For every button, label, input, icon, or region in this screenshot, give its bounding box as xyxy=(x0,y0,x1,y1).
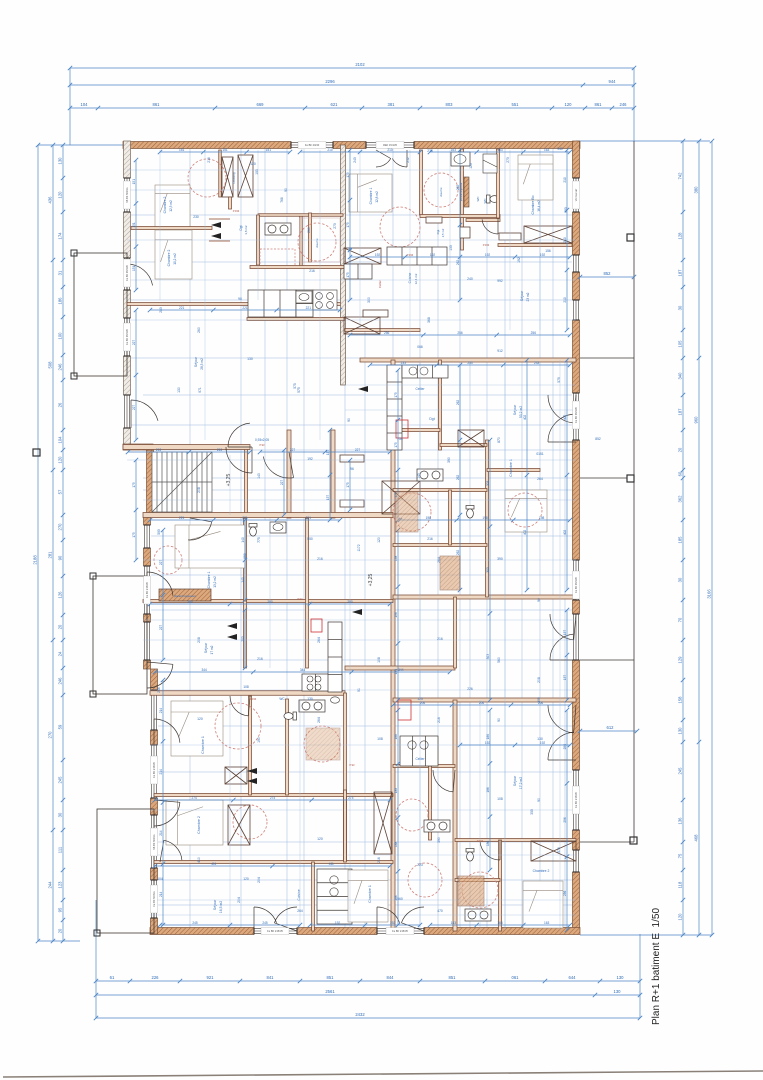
svg-text:368: 368 xyxy=(427,317,431,323)
svg-text:Fe BF 215/35: Fe BF 215/35 xyxy=(145,582,149,598)
svg-text:20: 20 xyxy=(58,624,63,629)
svg-text:REF 15/135: REF 15/135 xyxy=(383,143,397,147)
svg-text:213: 213 xyxy=(156,448,162,452)
svg-text:175: 175 xyxy=(346,482,350,488)
svg-text:410: 410 xyxy=(197,857,201,863)
svg-text:188: 188 xyxy=(394,841,398,847)
svg-text:612: 612 xyxy=(607,725,615,730)
svg-text:16,4 m2: 16,4 m2 xyxy=(537,200,541,212)
svg-text:274: 274 xyxy=(192,796,198,800)
svg-text:192: 192 xyxy=(390,921,396,925)
svg-text:+3,25: +3,25 xyxy=(368,573,374,586)
svg-text:17,2 m2: 17,2 m2 xyxy=(519,777,523,789)
svg-text:157: 157 xyxy=(563,675,567,681)
svg-text:120: 120 xyxy=(377,537,381,543)
svg-text:151: 151 xyxy=(132,265,136,271)
svg-text:WC: WC xyxy=(476,196,480,202)
svg-text:120: 120 xyxy=(58,191,63,199)
svg-text:57: 57 xyxy=(58,489,63,494)
svg-text:187: 187 xyxy=(678,408,683,416)
svg-text:91: 91 xyxy=(357,688,361,692)
svg-text:851: 851 xyxy=(327,975,335,980)
svg-text:163: 163 xyxy=(544,148,550,152)
svg-text:douche: douche xyxy=(315,238,319,248)
svg-text:210: 210 xyxy=(563,177,567,183)
svg-text:Fe BF 215/35: Fe BF 215/35 xyxy=(267,929,283,933)
svg-text:163: 163 xyxy=(544,921,550,925)
svg-text:264: 264 xyxy=(317,637,321,643)
svg-text:90: 90 xyxy=(347,418,351,422)
svg-text:344: 344 xyxy=(398,668,404,672)
svg-text:130: 130 xyxy=(58,157,63,165)
svg-text:775: 775 xyxy=(257,537,261,543)
svg-text:111: 111 xyxy=(58,846,63,853)
svg-text:Séjour: Séjour xyxy=(213,899,217,910)
svg-text:204: 204 xyxy=(257,877,261,883)
svg-text:130: 130 xyxy=(617,975,625,980)
svg-text:P.033: P.033 xyxy=(233,209,240,213)
svg-text:303: 303 xyxy=(486,654,490,660)
svg-text:280: 280 xyxy=(159,307,163,313)
svg-text:175: 175 xyxy=(394,392,398,398)
svg-text:130: 130 xyxy=(247,357,253,361)
svg-text:175: 175 xyxy=(394,442,398,448)
svg-text:2188: 2188 xyxy=(33,555,38,565)
svg-text:221: 221 xyxy=(242,306,248,310)
svg-text:Dgt: Dgt xyxy=(436,230,440,235)
svg-text:123: 123 xyxy=(417,697,423,701)
svg-text:233: 233 xyxy=(534,361,540,365)
svg-text:213: 213 xyxy=(217,448,223,452)
svg-text:870: 870 xyxy=(497,437,501,443)
svg-text:108: 108 xyxy=(377,737,383,741)
svg-text:16,5 m2: 16,5 m2 xyxy=(219,901,223,913)
svg-text:2,5 m2: 2,5 m2 xyxy=(441,228,445,237)
svg-text:551: 551 xyxy=(512,102,520,107)
svg-text:579: 579 xyxy=(557,377,561,383)
svg-text:186: 186 xyxy=(486,734,490,740)
svg-text:256: 256 xyxy=(457,331,463,335)
svg-text:Fe BF 215/35: Fe BF 215/35 xyxy=(152,762,156,778)
svg-text:100: 100 xyxy=(58,332,63,340)
svg-text:362: 362 xyxy=(678,495,683,503)
svg-text:75: 75 xyxy=(678,853,683,858)
svg-text:24: 24 xyxy=(58,651,63,656)
svg-text:216: 216 xyxy=(377,857,381,863)
svg-text:742: 742 xyxy=(678,172,683,180)
svg-text:590: 590 xyxy=(537,697,541,703)
svg-text:861: 861 xyxy=(595,102,603,107)
svg-text:140: 140 xyxy=(241,537,245,543)
svg-text:P.033: P.033 xyxy=(483,243,490,247)
svg-text:402: 402 xyxy=(563,415,567,421)
svg-text:Séjour: Séjour xyxy=(513,404,517,415)
svg-text:90: 90 xyxy=(238,297,242,301)
svg-text:12,3 m2: 12,3 m2 xyxy=(169,200,173,212)
svg-text:274: 274 xyxy=(270,796,276,800)
svg-text:151: 151 xyxy=(132,222,136,228)
svg-text:104: 104 xyxy=(157,877,163,881)
svg-text:350: 350 xyxy=(530,809,534,815)
svg-text:156: 156 xyxy=(545,249,551,253)
svg-text:210: 210 xyxy=(327,148,333,152)
svg-text:130: 130 xyxy=(614,989,622,994)
svg-text:245: 245 xyxy=(58,776,63,784)
svg-text:WC: WC xyxy=(279,697,285,701)
svg-text:214: 214 xyxy=(159,769,163,775)
svg-text:10,2 m2: 10,2 m2 xyxy=(173,253,177,265)
svg-text:861: 861 xyxy=(153,102,161,107)
svg-text:163: 163 xyxy=(451,921,457,925)
svg-text:Chambre 1: Chambre 1 xyxy=(368,885,372,903)
svg-text:227: 227 xyxy=(132,405,136,411)
svg-text:Fe BF 95/135: Fe BF 95/135 xyxy=(125,329,129,345)
svg-text:390: 390 xyxy=(447,457,451,463)
svg-text:Chambre 2: Chambre 2 xyxy=(533,869,550,873)
svg-text:104: 104 xyxy=(58,436,63,444)
svg-text:210: 210 xyxy=(563,297,567,303)
svg-text:221: 221 xyxy=(179,516,185,520)
svg-text:233: 233 xyxy=(467,361,473,365)
svg-text:0,93x2,05: 0,93x2,05 xyxy=(255,438,269,442)
svg-text:344: 344 xyxy=(300,668,306,672)
svg-text:246: 246 xyxy=(157,687,161,693)
svg-text:216: 216 xyxy=(309,269,315,273)
svg-text:262: 262 xyxy=(456,550,460,556)
svg-text:Chambre 2: Chambre 2 xyxy=(167,250,171,267)
svg-text:852: 852 xyxy=(604,271,612,276)
svg-text:30: 30 xyxy=(58,812,63,817)
svg-text:WC: WC xyxy=(483,198,487,204)
svg-text:958: 958 xyxy=(243,553,247,559)
svg-text:174: 174 xyxy=(58,232,63,240)
svg-text:227: 227 xyxy=(290,448,296,452)
svg-text:221: 221 xyxy=(306,516,312,520)
svg-text:262: 262 xyxy=(456,185,460,191)
svg-text:186: 186 xyxy=(486,787,490,793)
svg-text:Fe BF 215/35: Fe BF 215/35 xyxy=(574,792,578,808)
svg-text:274: 274 xyxy=(348,796,354,800)
svg-text:245: 245 xyxy=(192,921,198,925)
svg-text:60: 60 xyxy=(678,471,683,476)
svg-text:30: 30 xyxy=(678,305,683,310)
svg-text:2102: 2102 xyxy=(355,62,365,67)
svg-text:20: 20 xyxy=(58,928,63,933)
svg-text:411: 411 xyxy=(329,862,334,866)
svg-text:192: 192 xyxy=(540,741,546,745)
svg-text:260: 260 xyxy=(307,227,311,233)
svg-text:120: 120 xyxy=(469,163,473,169)
svg-text:188: 188 xyxy=(394,734,398,740)
svg-text:Fe BF 20/40: Fe BF 20/40 xyxy=(305,143,320,147)
svg-text:douche: douche xyxy=(439,187,443,197)
svg-text:300: 300 xyxy=(367,297,371,303)
svg-text:Cuisine: Cuisine xyxy=(297,889,301,900)
svg-text:575: 575 xyxy=(557,847,561,853)
svg-text:Chambre 2: Chambre 2 xyxy=(197,816,201,834)
svg-text:Cellier: Cellier xyxy=(378,280,382,288)
svg-text:192: 192 xyxy=(485,253,491,257)
svg-text:90: 90 xyxy=(58,555,63,560)
svg-text:Chambre 1: Chambre 1 xyxy=(207,572,211,589)
svg-text:151: 151 xyxy=(222,148,228,152)
svg-text:175: 175 xyxy=(346,222,350,228)
svg-text:17 m2: 17 m2 xyxy=(210,645,214,654)
svg-text:163: 163 xyxy=(497,148,503,152)
svg-text:Séjour: Séjour xyxy=(204,642,208,653)
svg-text:90: 90 xyxy=(497,718,501,722)
svg-text:223: 223 xyxy=(417,863,423,867)
svg-text:120: 120 xyxy=(678,913,683,921)
svg-text:175: 175 xyxy=(346,172,350,178)
svg-text:226: 226 xyxy=(152,975,160,980)
svg-text:130: 130 xyxy=(177,387,181,393)
svg-text:+3,25: +3,25 xyxy=(226,473,232,486)
svg-text:390: 390 xyxy=(437,837,441,843)
svg-text:158: 158 xyxy=(678,696,683,704)
svg-text:P.033: P.033 xyxy=(477,839,484,843)
svg-text:2296: 2296 xyxy=(325,79,335,84)
svg-text:216: 216 xyxy=(437,637,443,641)
svg-text:186: 186 xyxy=(58,297,63,305)
svg-text:227: 227 xyxy=(280,480,284,486)
svg-text:120: 120 xyxy=(243,877,249,881)
svg-text:944: 944 xyxy=(609,79,617,84)
svg-text:992: 992 xyxy=(497,279,503,283)
svg-text:206: 206 xyxy=(420,701,426,705)
svg-text:120: 120 xyxy=(565,102,573,107)
svg-text:2432: 2432 xyxy=(355,1012,365,1017)
svg-text:233: 233 xyxy=(401,361,407,365)
svg-text:575: 575 xyxy=(293,383,297,389)
svg-text:912: 912 xyxy=(497,349,503,353)
svg-text:190: 190 xyxy=(257,737,261,743)
svg-text:108: 108 xyxy=(377,657,381,663)
svg-text:3166: 3166 xyxy=(707,589,712,599)
svg-text:Chambre Bo: Chambre Bo xyxy=(531,195,535,214)
svg-text:198: 198 xyxy=(394,555,398,561)
svg-text:Fe BF 95/135: Fe BF 95/135 xyxy=(125,265,129,281)
svg-text:Vol roul arr: Vol roul arr xyxy=(574,189,578,202)
svg-text:175: 175 xyxy=(346,272,350,278)
svg-text:30: 30 xyxy=(678,577,683,582)
svg-text:198: 198 xyxy=(394,612,398,618)
svg-text:256: 256 xyxy=(563,817,567,823)
svg-text:280: 280 xyxy=(267,600,273,604)
svg-text:940: 940 xyxy=(557,147,563,151)
svg-text:1172: 1172 xyxy=(357,544,361,551)
svg-text:Fe BF 95/135: Fe BF 95/135 xyxy=(574,577,578,593)
svg-text:Dgt: Dgt xyxy=(429,417,434,421)
svg-text:96: 96 xyxy=(350,467,354,471)
svg-text:390: 390 xyxy=(497,557,503,561)
svg-text:175: 175 xyxy=(132,532,136,538)
svg-text:246: 246 xyxy=(58,677,63,685)
svg-text:70: 70 xyxy=(678,617,683,622)
svg-text:Chambre 2: Chambre 2 xyxy=(163,197,167,214)
svg-text:28,3 m2: 28,3 m2 xyxy=(200,358,204,370)
svg-text:192: 192 xyxy=(517,257,521,263)
svg-text:26: 26 xyxy=(58,402,63,407)
svg-text:P.93: P.93 xyxy=(297,597,303,601)
svg-text:270: 270 xyxy=(48,731,53,739)
svg-text:108: 108 xyxy=(243,685,249,689)
svg-text:644: 644 xyxy=(569,975,577,980)
svg-text:151: 151 xyxy=(266,148,272,152)
svg-text:192: 192 xyxy=(540,253,546,257)
svg-text:204: 204 xyxy=(237,897,241,903)
svg-text:244: 244 xyxy=(48,881,53,889)
svg-text:560: 560 xyxy=(497,657,501,663)
svg-text:621: 621 xyxy=(331,102,339,107)
svg-text:188: 188 xyxy=(394,788,398,794)
svg-text:95: 95 xyxy=(58,907,63,912)
svg-text:971: 971 xyxy=(198,387,202,393)
svg-text:221: 221 xyxy=(179,306,185,310)
svg-text:280: 280 xyxy=(187,600,193,604)
svg-text:402: 402 xyxy=(523,530,527,536)
svg-text:Chambre 1: Chambre 1 xyxy=(369,188,373,205)
svg-text:59: 59 xyxy=(58,724,63,729)
svg-text:575: 575 xyxy=(297,387,301,393)
svg-text:246: 246 xyxy=(58,363,63,371)
svg-text:198: 198 xyxy=(482,516,488,520)
svg-text:208: 208 xyxy=(537,677,541,683)
svg-text:188: 188 xyxy=(394,895,398,901)
svg-text:198: 198 xyxy=(394,669,398,675)
svg-text:118: 118 xyxy=(678,881,683,888)
svg-text:208: 208 xyxy=(197,637,201,643)
svg-text:256: 256 xyxy=(563,890,567,896)
svg-text:108: 108 xyxy=(497,797,503,801)
svg-text:246: 246 xyxy=(620,102,628,107)
svg-text:262: 262 xyxy=(456,400,460,406)
svg-text:192: 192 xyxy=(335,921,341,925)
svg-text:216: 216 xyxy=(427,537,433,541)
svg-text:470: 470 xyxy=(437,909,443,913)
svg-text:Dgt: Dgt xyxy=(239,225,243,230)
svg-text:262: 262 xyxy=(456,260,460,266)
svg-text:163: 163 xyxy=(451,148,457,152)
svg-text:13,2 m2: 13,2 m2 xyxy=(213,576,217,588)
svg-text:221: 221 xyxy=(306,306,312,310)
svg-text:210: 210 xyxy=(563,237,567,243)
svg-text:120: 120 xyxy=(317,837,323,841)
svg-text:90: 90 xyxy=(537,598,541,602)
svg-text:P.93: P.93 xyxy=(259,443,265,447)
svg-text:130: 130 xyxy=(678,727,683,735)
svg-text:Fe BF 50/NG: Fe BF 50/NG xyxy=(152,891,156,906)
svg-text:208: 208 xyxy=(197,487,201,493)
svg-text:238: 238 xyxy=(427,149,433,153)
svg-text:Dressing: Dressing xyxy=(232,172,236,183)
svg-text:270: 270 xyxy=(506,157,510,163)
svg-text:844: 844 xyxy=(387,975,395,980)
svg-text:130: 130 xyxy=(449,245,453,251)
svg-text:31: 31 xyxy=(58,270,63,275)
svg-text:157: 157 xyxy=(563,630,567,636)
svg-text:192: 192 xyxy=(485,741,491,745)
svg-text:380: 380 xyxy=(694,186,699,194)
svg-text:090: 090 xyxy=(564,207,568,213)
svg-text:103: 103 xyxy=(255,169,259,175)
svg-text:402: 402 xyxy=(523,415,527,421)
svg-text:90: 90 xyxy=(537,798,541,802)
svg-text:303: 303 xyxy=(486,480,490,486)
svg-text:214: 214 xyxy=(159,891,163,897)
svg-text:218: 218 xyxy=(207,157,211,163)
svg-text:123: 123 xyxy=(58,881,63,889)
svg-text:P.033: P.033 xyxy=(250,697,257,701)
svg-text:227: 227 xyxy=(159,625,163,631)
svg-text:270: 270 xyxy=(333,223,337,229)
svg-text:Séjour: Séjour xyxy=(194,356,198,367)
svg-text:157: 157 xyxy=(326,495,330,501)
svg-text:104: 104 xyxy=(81,102,89,107)
svg-text:245: 245 xyxy=(262,921,268,925)
svg-text:669: 669 xyxy=(257,102,265,107)
svg-text:198: 198 xyxy=(539,516,545,520)
svg-text:281: 281 xyxy=(48,551,53,559)
svg-text:381: 381 xyxy=(388,102,396,107)
svg-text:Séjour: Séjour xyxy=(520,290,524,301)
svg-text:256: 256 xyxy=(531,331,537,335)
svg-text:140: 140 xyxy=(241,577,245,583)
svg-text:151: 151 xyxy=(132,179,136,185)
svg-text:12,8 m2: 12,8 m2 xyxy=(375,191,379,203)
svg-text:264: 264 xyxy=(297,909,303,913)
svg-text:344: 344 xyxy=(202,668,208,672)
svg-text:061: 061 xyxy=(512,975,520,980)
svg-text:Plan R+1 batiment E 1/50: Plan R+1 batiment E 1/50 xyxy=(651,908,662,1025)
svg-text:163: 163 xyxy=(497,921,503,925)
svg-text:240: 240 xyxy=(467,277,473,281)
svg-text:143: 143 xyxy=(257,473,261,479)
svg-text:436: 436 xyxy=(48,196,53,204)
svg-text:P.93: P.93 xyxy=(349,763,355,767)
svg-text:411: 411 xyxy=(211,862,216,866)
svg-text:216: 216 xyxy=(437,717,441,723)
svg-text:187: 187 xyxy=(678,269,683,277)
svg-text:226: 226 xyxy=(467,687,473,691)
svg-text:185: 185 xyxy=(678,536,683,544)
svg-text:262: 262 xyxy=(456,475,460,481)
svg-text:340: 340 xyxy=(678,372,683,380)
svg-text:96 BF 50/NG: 96 BF 50/NG xyxy=(152,834,156,849)
svg-text:230: 230 xyxy=(193,215,199,219)
svg-text:placard rangement: placard rangement xyxy=(460,182,463,201)
svg-text:256: 256 xyxy=(384,331,390,335)
svg-text:120: 120 xyxy=(197,717,203,721)
svg-text:203: 203 xyxy=(241,636,245,642)
svg-text:Séjour: Séjour xyxy=(513,775,517,786)
svg-text:0151: 0151 xyxy=(536,452,544,456)
svg-text:280: 280 xyxy=(347,600,353,604)
svg-text:126: 126 xyxy=(58,591,63,599)
svg-text:192: 192 xyxy=(430,253,436,257)
svg-text:270: 270 xyxy=(58,523,63,531)
svg-text:157: 157 xyxy=(326,450,330,456)
svg-text:143: 143 xyxy=(417,473,421,479)
svg-text:Chambre 1: Chambre 1 xyxy=(509,459,513,477)
svg-text:468: 468 xyxy=(694,834,699,842)
svg-text:264: 264 xyxy=(317,717,321,723)
svg-text:227: 227 xyxy=(159,560,163,566)
svg-text:214: 214 xyxy=(159,708,163,714)
svg-text:Cellier: Cellier xyxy=(415,387,425,391)
svg-text:175: 175 xyxy=(132,482,136,488)
svg-text:227: 227 xyxy=(132,340,136,346)
